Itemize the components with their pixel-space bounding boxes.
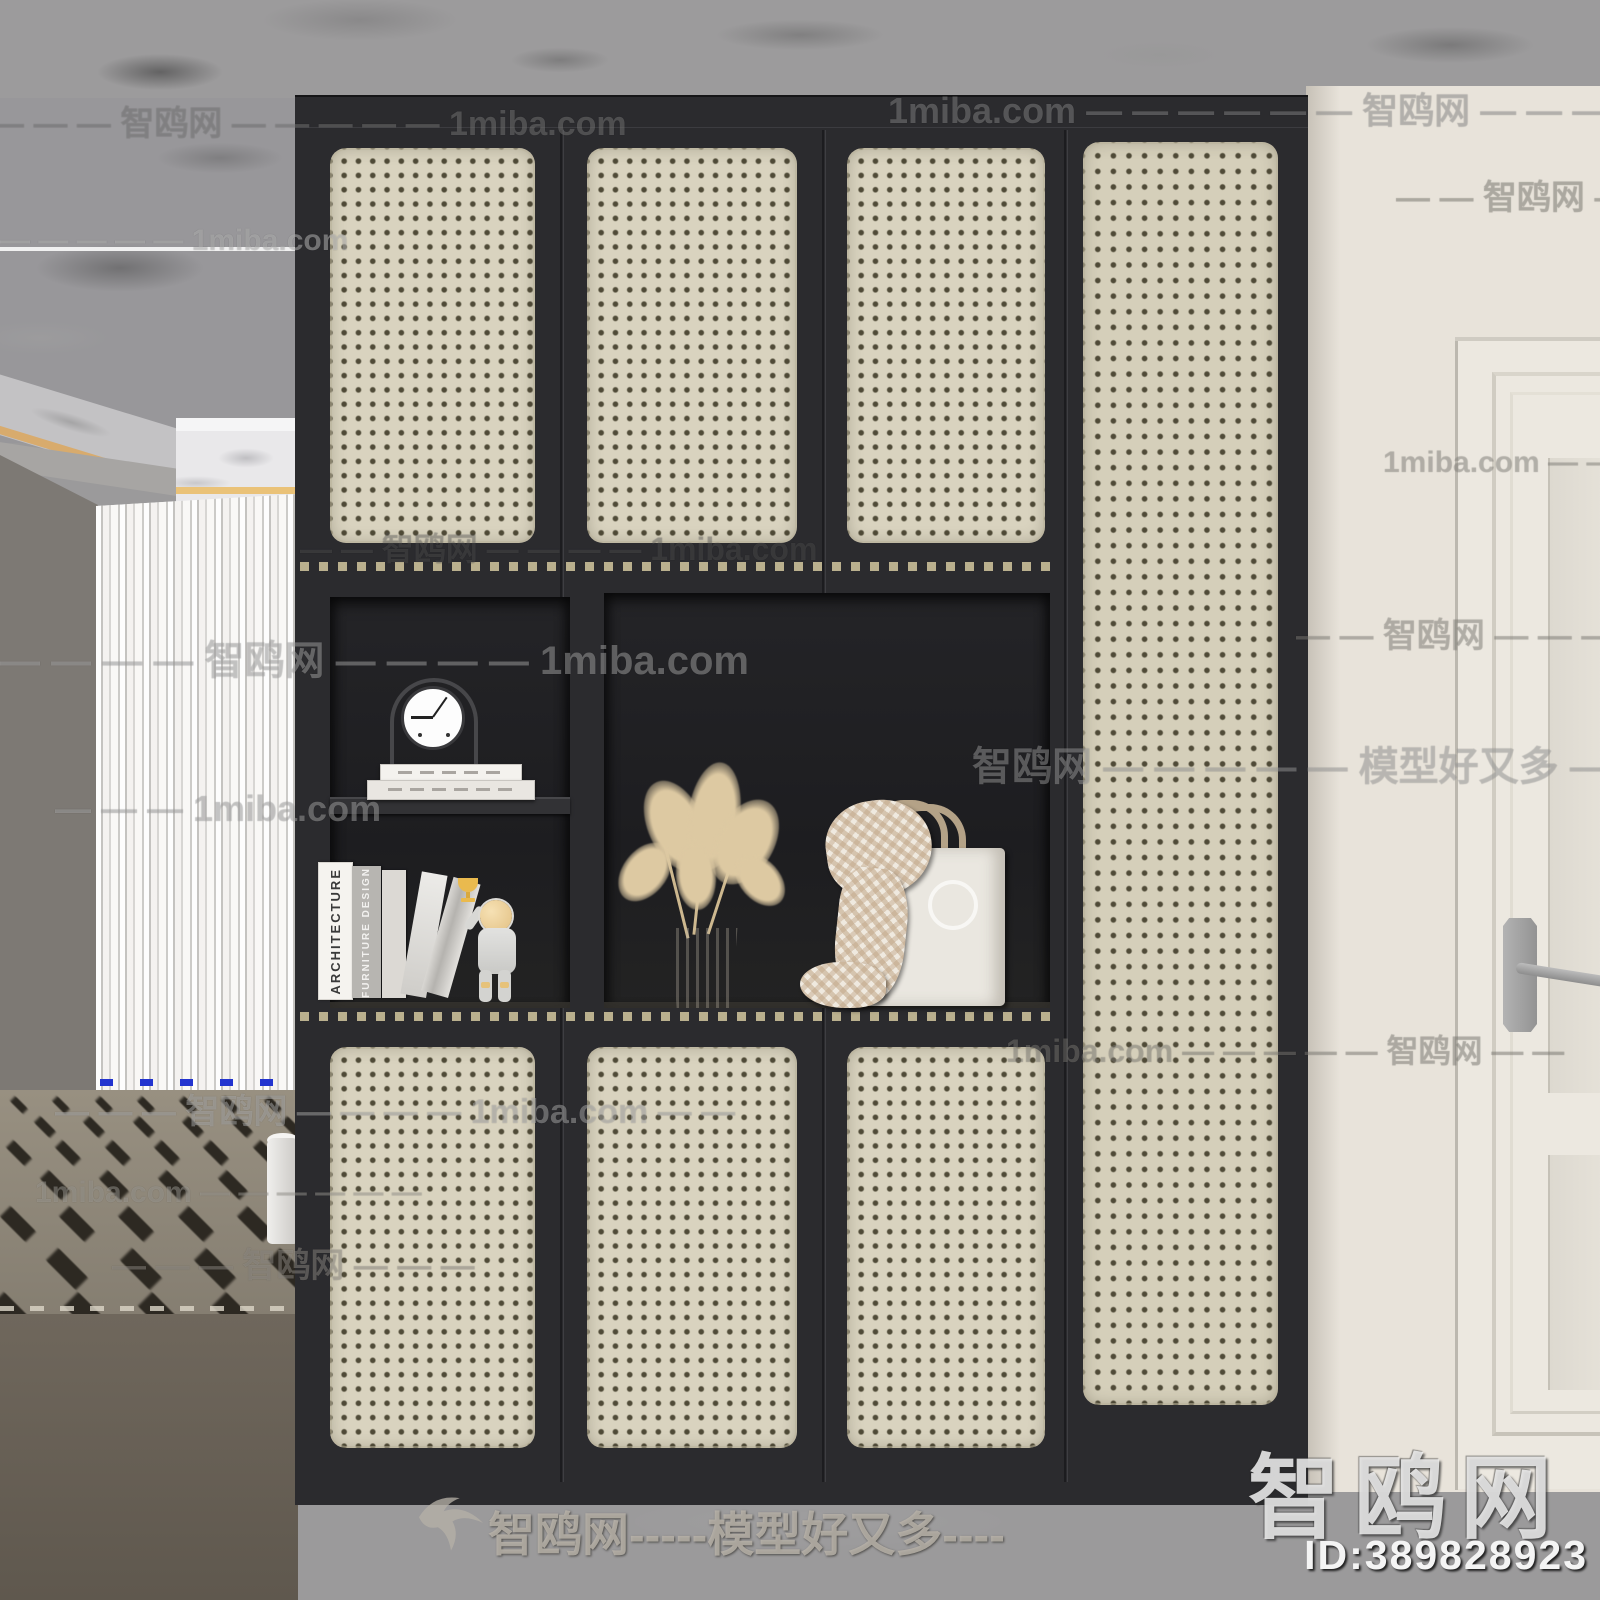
rug-diamond-motif [133,1116,155,1138]
book-spine-furniture-design: FURNITURE DESIGN [352,866,381,998]
rug-diamond-motif [182,1116,204,1138]
bag-logo-ring [928,880,978,930]
ceiling-trim-line [0,247,296,251]
cane-panel-bottom-1[interactable] [330,1047,535,1448]
rug-diamond-motif [264,1096,282,1114]
rug-diamond-motif [34,1116,56,1138]
rug-diamond-motif [0,1206,36,1242]
curtain-hem-marks [100,1079,296,1086]
cabinet-dash-trim-lower [300,1012,1057,1021]
rug-diamond-motif [52,1096,70,1114]
hallway-floor [0,1314,298,1600]
trophy-base [461,898,475,902]
astronaut-figurine-body [478,928,516,974]
cane-panel-top-1[interactable] [330,148,535,543]
marble-header-highlight [176,418,298,431]
rug-diamond-motif [231,1116,253,1138]
rug-diamond-motif [203,1140,229,1166]
rug-diamond-motif [40,1170,70,1200]
door-recessed-panel-upper [1548,458,1600,1093]
rug-diamond-motif [6,1140,32,1166]
book-spine-label: FURNITURE DESIGN [361,867,372,998]
cabinet-top-seam [295,127,1308,128]
book-spine-label: ARCHITECTURE [328,868,343,995]
rug-diamond-motif [59,1206,95,1242]
clock-hour-hand [411,716,433,719]
ceiling-marble [0,0,1600,100]
cane-panel-bottom-3[interactable] [847,1047,1045,1448]
clock-minute-hand [432,697,447,718]
door-frame-top [1455,337,1600,341]
rug-diamond-motif [99,1170,129,1200]
diamond-pattern-rug [0,1090,296,1316]
rug-diamond-motif [55,1140,81,1166]
cabinet-dash-trim-upper [300,562,1057,571]
rug-diamond-motif [221,1096,239,1114]
cabinet-door-seam-3-highlight [1067,130,1068,1482]
rendered-interior-scene: ARCHITECTURE FURNITURE DESIGN — — — 智鸥网 … [0,0,1600,1600]
sheer-curtain [96,494,298,1094]
clock-marker [446,733,450,737]
stacked-book-2 [367,780,535,800]
rug-diamond-motif [83,1116,105,1138]
right-wall-shading [1306,86,1340,1492]
rug-diamond-motif [158,1170,188,1200]
rug-diamond-motif [105,1140,131,1166]
astronaut-knee-pad [481,982,490,988]
cane-panel-tall-right[interactable] [1083,142,1278,1405]
astronaut-knee-pad [500,982,509,988]
rug-diamond-motif [118,1206,154,1242]
rug-diamond-motif [194,1248,236,1290]
rug-diamond-motif [46,1248,88,1290]
cane-panel-top-2[interactable] [587,148,797,543]
checkered-scarf-tail [800,962,886,1008]
rug-diamond-motif [120,1248,162,1290]
cabinet-door-seam-3 [1064,130,1066,1482]
white-vase [666,928,742,1008]
clock-marker [418,733,422,737]
cane-panel-top-3[interactable] [847,148,1045,543]
rug-diamond-motif [218,1170,248,1200]
door-recessed-panel-lower [1548,1155,1600,1390]
rug-diamond-motif [154,1140,180,1166]
left-niche-floor [330,1002,570,1008]
rug-diamond-motif [178,1206,214,1242]
rug-diamond-motif [137,1096,155,1114]
cane-panel-bottom-2[interactable] [587,1047,797,1448]
book-spine-architecture: ARCHITECTURE [318,862,353,1000]
gold-trim-strip-2 [176,487,298,494]
rug-diamond-motif [95,1096,113,1114]
clock-face [401,686,465,750]
door-frame-seam [1455,337,1458,1490]
rug-diamond-motif [179,1096,197,1114]
rug-diamond-motif [10,1096,28,1114]
rug-border-dashes [0,1306,296,1311]
